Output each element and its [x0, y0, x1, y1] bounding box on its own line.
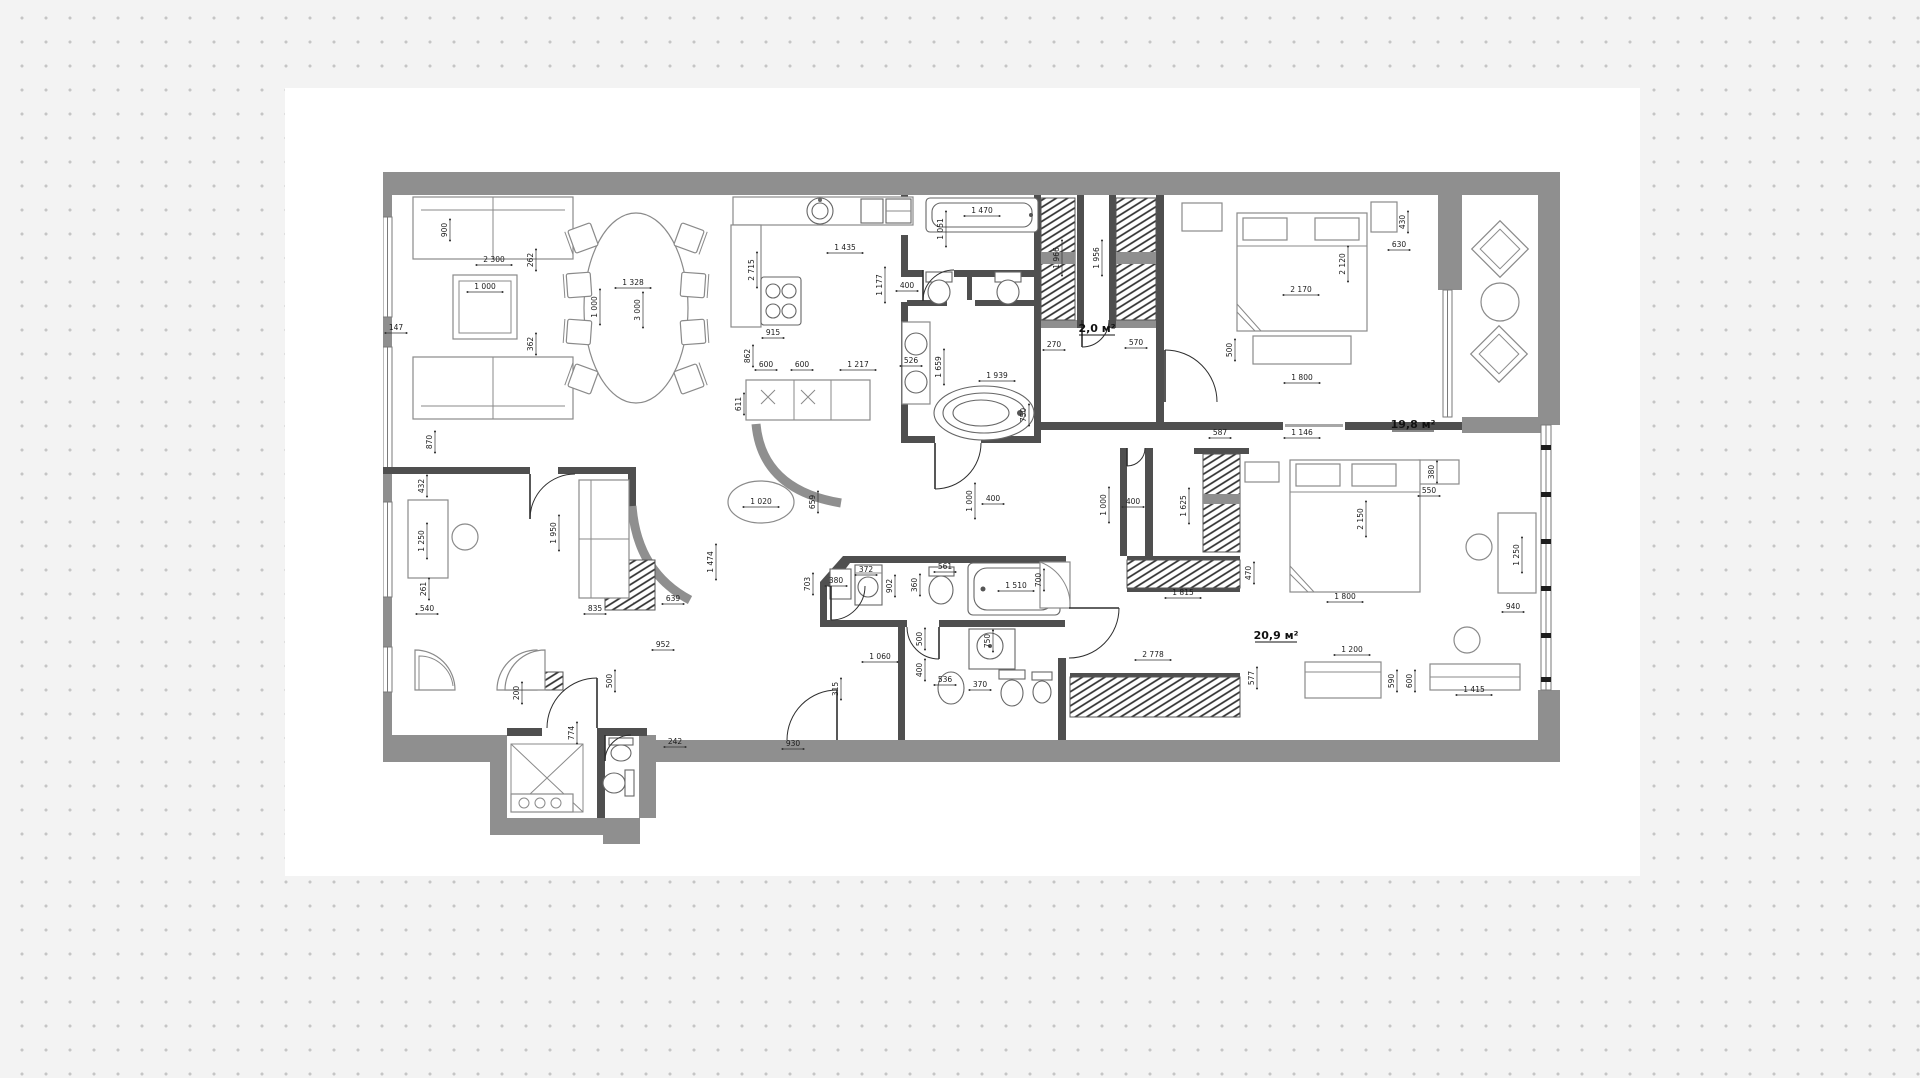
- dimension-label: 315: [831, 682, 840, 697]
- dimension-label: 360: [910, 578, 919, 593]
- dimension-label: 380: [1427, 465, 1436, 480]
- room-area-label: 19,8 м²: [1391, 418, 1436, 431]
- dimension-label: 372: [859, 565, 874, 574]
- dimension-label: 700: [1034, 573, 1043, 588]
- dimension-label: 430: [1398, 215, 1407, 230]
- dimension-label: 750: [983, 634, 992, 649]
- dimension-label: 600: [795, 360, 810, 369]
- dimension-label: 1 217: [847, 360, 869, 369]
- left-bedroom-fur: [408, 480, 629, 690]
- dimension-label: 952: [656, 640, 671, 649]
- dimension-label: 1 051: [936, 218, 945, 240]
- balcony-fur: [1471, 221, 1529, 383]
- dimension-label: 432: [417, 479, 426, 494]
- dimension-label: 1 625: [1179, 495, 1188, 517]
- dimension-label: 611: [734, 397, 743, 412]
- dimension-label: 774: [567, 726, 576, 741]
- dimension-label: 1 000: [1099, 494, 1108, 516]
- dimension-label: 1 146: [1291, 428, 1313, 437]
- dimension-label: 1 950: [549, 522, 558, 544]
- dimension-label: 1 956: [1092, 247, 1101, 269]
- dimension-label: 915: [766, 328, 781, 337]
- dimension-label: 3 000: [633, 299, 642, 321]
- dimension-label: 570: [1129, 338, 1144, 347]
- dimension-label: 659: [808, 495, 817, 510]
- dimension-label: 470: [1244, 566, 1253, 581]
- dimension-label: 550: [1422, 486, 1437, 495]
- dimension-label: 500: [605, 674, 614, 689]
- dimension-label: 1 177: [875, 274, 884, 296]
- room-area-label: 20,9 м²: [1254, 629, 1299, 642]
- desktop-background: { "canvas": { "background": "#f3f3f3", "…: [0, 0, 1920, 1078]
- dimension-label: 362: [526, 337, 535, 352]
- dimension-label: 526: [904, 356, 919, 365]
- dimension-label: 600: [759, 360, 774, 369]
- dimension-label: 536: [938, 675, 953, 684]
- dimension-label: 1 250: [1512, 544, 1521, 566]
- dimension-label: 500: [1225, 343, 1234, 358]
- dimension-label: 587: [1213, 428, 1228, 437]
- dimension-label: 1 800: [1334, 592, 1356, 601]
- dimension-label: 870: [425, 435, 434, 450]
- dimension-label: 1 415: [1463, 685, 1485, 694]
- dimension-label: 2 715: [747, 259, 756, 281]
- dimension-label: 900: [440, 223, 449, 238]
- dimension-label: 540: [420, 604, 435, 613]
- dimension-label: 1 510: [1005, 581, 1027, 590]
- dimension-label: 1 020: [750, 497, 772, 506]
- dimension-label: 630: [1392, 240, 1407, 249]
- dimension-label: 2 150: [1356, 508, 1365, 530]
- dimension-label: 1 435: [834, 243, 856, 252]
- dimension-label: 261: [419, 582, 428, 597]
- dimension-label: 1 000: [590, 296, 599, 318]
- dimension-label: 400: [915, 663, 924, 678]
- dimension-label: 262: [526, 253, 535, 268]
- dimension-label: 1 966: [1052, 247, 1061, 269]
- dimension-label: 200: [512, 686, 521, 701]
- dimension-label: 400: [1126, 497, 1141, 506]
- dimension-label: 940: [1506, 602, 1521, 611]
- dimension-label: 1 200: [1341, 645, 1363, 654]
- dimension-label: 902: [885, 579, 894, 594]
- dimension-label: 1 000: [474, 282, 496, 291]
- dimension-label: 1 000: [965, 490, 974, 512]
- dimension-label: 750: [1019, 408, 1028, 423]
- plan-sheet: 9002 3002621 0001 0003621478701 3283 000…: [285, 88, 1640, 876]
- dimension-label: 2 170: [1290, 285, 1312, 294]
- dimension-label: 370: [973, 680, 988, 689]
- dimension-label: 1 659: [934, 356, 943, 378]
- dimension-label: 1 800: [1291, 373, 1313, 382]
- dimension-label: 2 120: [1338, 253, 1347, 275]
- dimension-label: 1 470: [971, 206, 993, 215]
- dimension-label: 1 939: [986, 371, 1008, 380]
- dimension-label: 703: [803, 577, 812, 592]
- dimension-label: 400: [986, 494, 1001, 503]
- master-bedroom-fur: [1182, 202, 1397, 364]
- kitchen-fur: [731, 197, 913, 420]
- dimension-label: 2 300: [483, 255, 505, 264]
- dimension-label: 1 815: [1172, 588, 1194, 597]
- dimension-label: 561: [938, 562, 953, 571]
- dimension-label: 1 060: [869, 652, 891, 661]
- dimension-label: 147: [389, 323, 404, 332]
- dimension-label: 835: [588, 604, 603, 613]
- vestibule-fur: [511, 738, 634, 812]
- dimension-label: 1 474: [706, 551, 715, 573]
- bedroom2-fur: [1245, 460, 1536, 698]
- room-area-label: 2,0 м²: [1078, 322, 1115, 335]
- dimension-label: 1 328: [622, 278, 644, 287]
- dimension-label: 400: [900, 281, 915, 290]
- dimension-label: 862: [743, 349, 752, 364]
- dimension-label: 577: [1247, 671, 1256, 686]
- dimension-label: 2 778: [1142, 650, 1164, 659]
- dimension-label: 270: [1047, 340, 1062, 349]
- floor-plan-drawing: 9002 3002621 0001 0003621478701 3283 000…: [383, 172, 1563, 844]
- dimension-label: 930: [786, 739, 801, 748]
- dimension-label: 380: [829, 576, 844, 585]
- dimension-label: 1 250: [417, 530, 426, 552]
- dimension-label: 600: [1405, 674, 1414, 689]
- dimension-label: 500: [915, 632, 924, 647]
- dimension-label: 242: [668, 737, 683, 746]
- dimension-label: 590: [1387, 674, 1396, 689]
- dimension-label: 639: [666, 594, 681, 603]
- living-room-furniture: [413, 197, 709, 419]
